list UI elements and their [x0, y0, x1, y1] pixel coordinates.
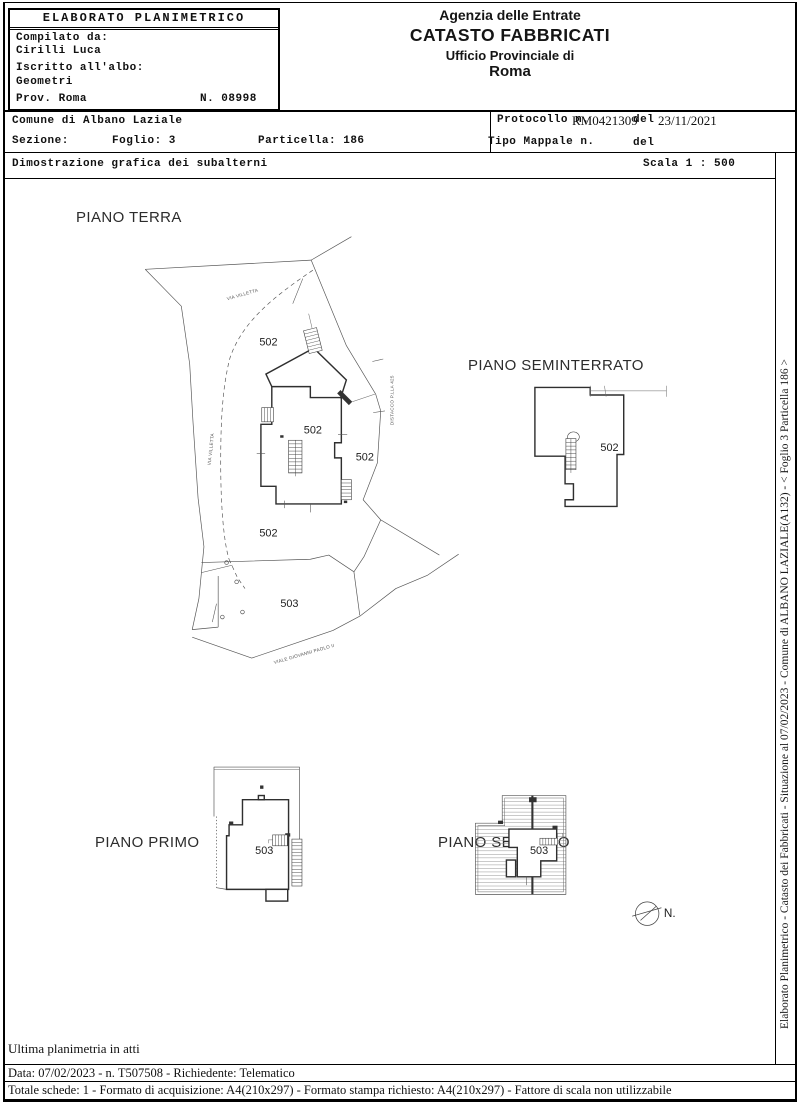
plan-mark	[229, 821, 233, 824]
gate-post	[235, 580, 239, 584]
boundary-north-road	[145, 237, 351, 270]
cadastral-document-page: ELABORATO PLANIMETRICO Compilato da: Cir…	[0, 0, 800, 1103]
stair-center	[289, 440, 302, 476]
unit-label-502: 502	[259, 337, 277, 349]
ultima-planimetria-note: Ultima planimetria in atti	[8, 1041, 140, 1057]
unit-label-503: 503	[280, 598, 298, 610]
side-strip-text: Elaborato Planimetrico - Catasto dei Fab…	[775, 174, 796, 1035]
stair-right	[341, 480, 351, 500]
roof-mark	[529, 797, 537, 802]
building-wing-outline	[266, 348, 346, 398]
footer-totale-row: Totale schede: 1 - Formato di acquisizio…	[8, 1083, 672, 1098]
chimney-notch	[258, 796, 264, 800]
boundary-tick	[373, 411, 385, 413]
gate-post	[225, 561, 229, 565]
albo-value: Geometri	[16, 76, 73, 88]
north-label: N.	[664, 907, 676, 920]
stair-left	[262, 408, 274, 422]
unit-label-503: 503	[255, 845, 273, 857]
plan-mark	[344, 501, 347, 504]
north-compass: N.	[632, 902, 676, 925]
boundary-tick	[372, 359, 383, 362]
albo-number: N. 08998	[200, 93, 257, 105]
agenzia-line4: Roma	[350, 63, 670, 80]
rule-footer-2	[3, 1081, 797, 1082]
boundary-west-road	[145, 269, 204, 629]
chimney	[506, 860, 515, 877]
unit-label-502: 502	[356, 451, 374, 463]
agenzia-line1: Agenzia delle Entrate	[350, 7, 670, 23]
agenzia-entrate-header: Agenzia delle Entrate CATASTO FABBRICATI…	[350, 7, 670, 80]
gate-post	[241, 610, 245, 614]
footer-data-row: Data: 07/02/2023 - n. T507508 - Richiede…	[8, 1066, 295, 1081]
balcony-below	[266, 889, 288, 901]
roof-mark	[498, 821, 503, 824]
stair-top	[304, 328, 323, 354]
sezione-label: Sezione:	[12, 135, 69, 147]
gate-cross-mark	[201, 565, 232, 573]
dashed-gate-path	[229, 559, 245, 588]
tipo-mappale-label: Tipo Mappale n.	[488, 136, 595, 148]
unit-label-503: 503	[530, 845, 548, 857]
boundary-south-road	[192, 616, 360, 658]
floor-plans-canvas: 502 502 502 502 503 VIA VILLETTA VIA VIL…	[0, 178, 800, 1098]
rule-footer-1	[3, 1064, 797, 1065]
gate-cross-mark	[212, 604, 216, 622]
gate-post	[221, 615, 225, 619]
stair-strip-right	[292, 839, 302, 886]
unit-label-502: 502	[304, 425, 322, 437]
provincia: Prov. Roma	[16, 93, 87, 105]
agenzia-line3: Ufficio Provinciale di	[350, 48, 670, 63]
elaborato-title: ELABORATO PLANIMETRICO	[10, 10, 278, 30]
compilato-value: Cirilli Luca	[16, 45, 101, 57]
particella-label: Particella: 186	[258, 135, 365, 147]
boundary-west-step	[192, 576, 218, 630]
unit-label-502: 502	[259, 528, 277, 540]
piano-seminterrato-plan: 502	[535, 386, 667, 507]
dimostrazione-label: Dimostrazione grafica dei subalterni	[12, 158, 268, 170]
piano-terra-plan: 502 502 502 502 503 VIA VILLETTA VIA VIL…	[145, 237, 458, 665]
comune-label: Comune di Albano Laziale	[12, 115, 182, 127]
rule-row2-bottom	[3, 152, 797, 153]
boundary-name-distacco: DISTACCO P.LLA 425	[389, 375, 394, 425]
street-name-via-villetta-top: VIA VILLETTA	[226, 287, 259, 301]
stair-small	[268, 835, 287, 846]
compilato-label: Compilato da:	[16, 32, 108, 44]
plan-mark	[280, 435, 283, 438]
spiral-stair	[566, 432, 579, 473]
stair-access-line	[309, 314, 312, 328]
boundary-se-roads	[360, 520, 459, 616]
foglio-label: Foglio: 3	[112, 135, 176, 147]
protocollo-date: 23/11/2021	[658, 113, 717, 129]
unit-label-502: 502	[600, 442, 618, 454]
boundary-east	[311, 260, 381, 572]
piano-secondo-plan: 503	[474, 796, 568, 895]
protocollo-del-label: del	[633, 114, 654, 126]
terrace-corner	[217, 888, 227, 890]
rule-header-bottom	[3, 110, 797, 112]
elaborato-planimetrico-box: ELABORATO PLANIMETRICO Compilato da: Cir…	[8, 8, 280, 111]
wing-roof-line	[352, 394, 375, 402]
plan-mark	[260, 785, 263, 788]
gate-cross-mark	[293, 279, 303, 304]
scala-label: Scala 1 : 500	[643, 158, 735, 170]
tipo-mappale-del-label: del	[633, 137, 654, 149]
street-name-via-villetta-left: VIA VILLETTA	[207, 432, 215, 465]
piano-primo-plan: 503	[214, 767, 302, 901]
roof-mark	[552, 826, 557, 829]
street-name-viale-giovanni-paolo: VIALE GIOVANNI PAOLO II	[273, 643, 335, 665]
protocollo-value: RM0421309	[572, 113, 638, 129]
compass-circle	[635, 902, 658, 925]
agenzia-line2: CATASTO FABBRICATI	[350, 25, 670, 46]
albo-label: Iscritto all'albo:	[16, 62, 144, 74]
